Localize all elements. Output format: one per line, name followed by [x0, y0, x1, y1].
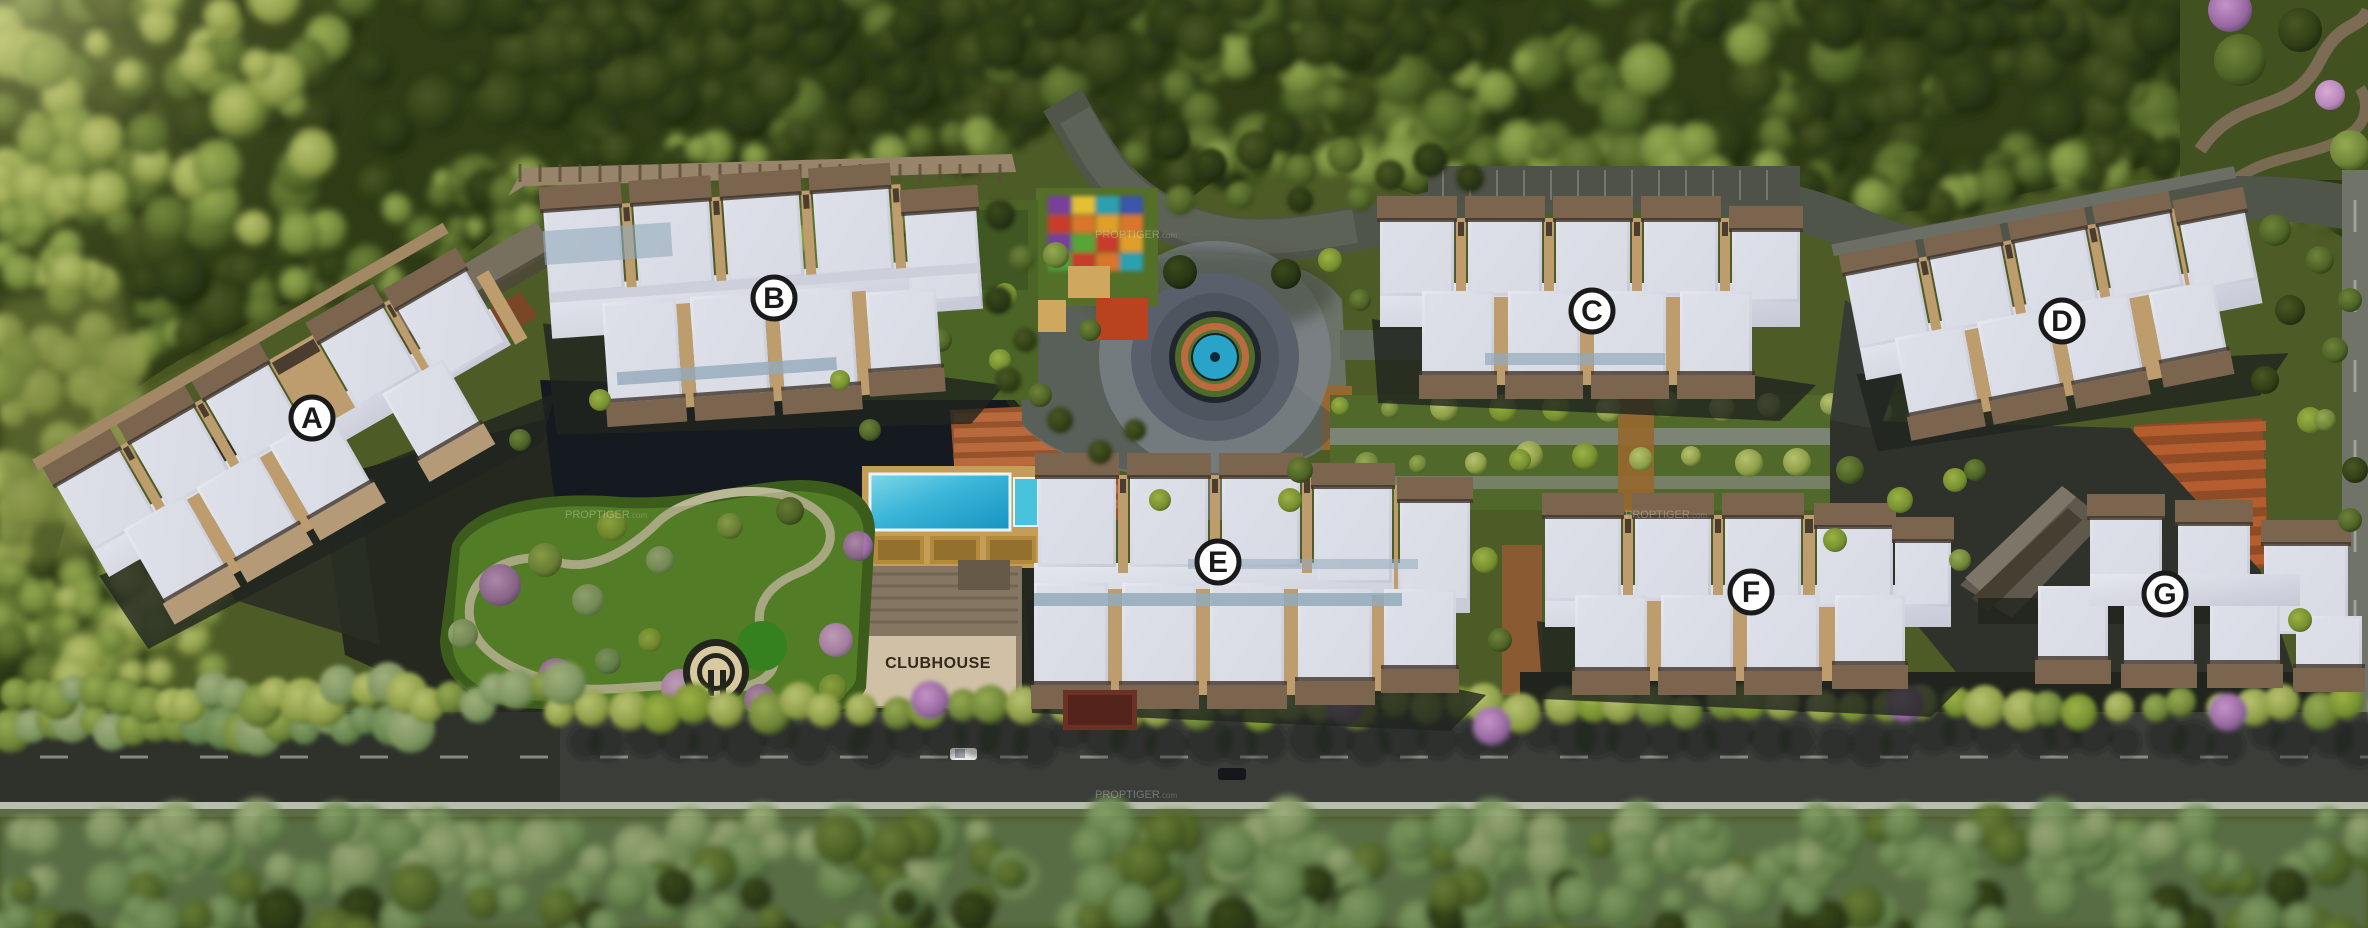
svg-text:PROPTIGER.com: PROPTIGER.com [1625, 509, 1707, 521]
svg-text:B: B [763, 282, 785, 315]
svg-text:PROPTIGER.com: PROPTIGER.com [1095, 789, 1177, 801]
svg-text:E: E [1208, 546, 1228, 579]
svg-text:G: G [2153, 578, 2176, 611]
svg-text:F: F [1742, 576, 1760, 609]
svg-text:PROPTIGER.com: PROPTIGER.com [1095, 229, 1177, 241]
svg-text:PROPTIGER.com: PROPTIGER.com [565, 509, 647, 521]
svg-text:A: A [301, 402, 323, 435]
svg-text:D: D [2051, 305, 2073, 338]
svg-text:CLUBHOUSE: CLUBHOUSE [885, 655, 991, 672]
svg-text:C: C [1581, 295, 1603, 328]
